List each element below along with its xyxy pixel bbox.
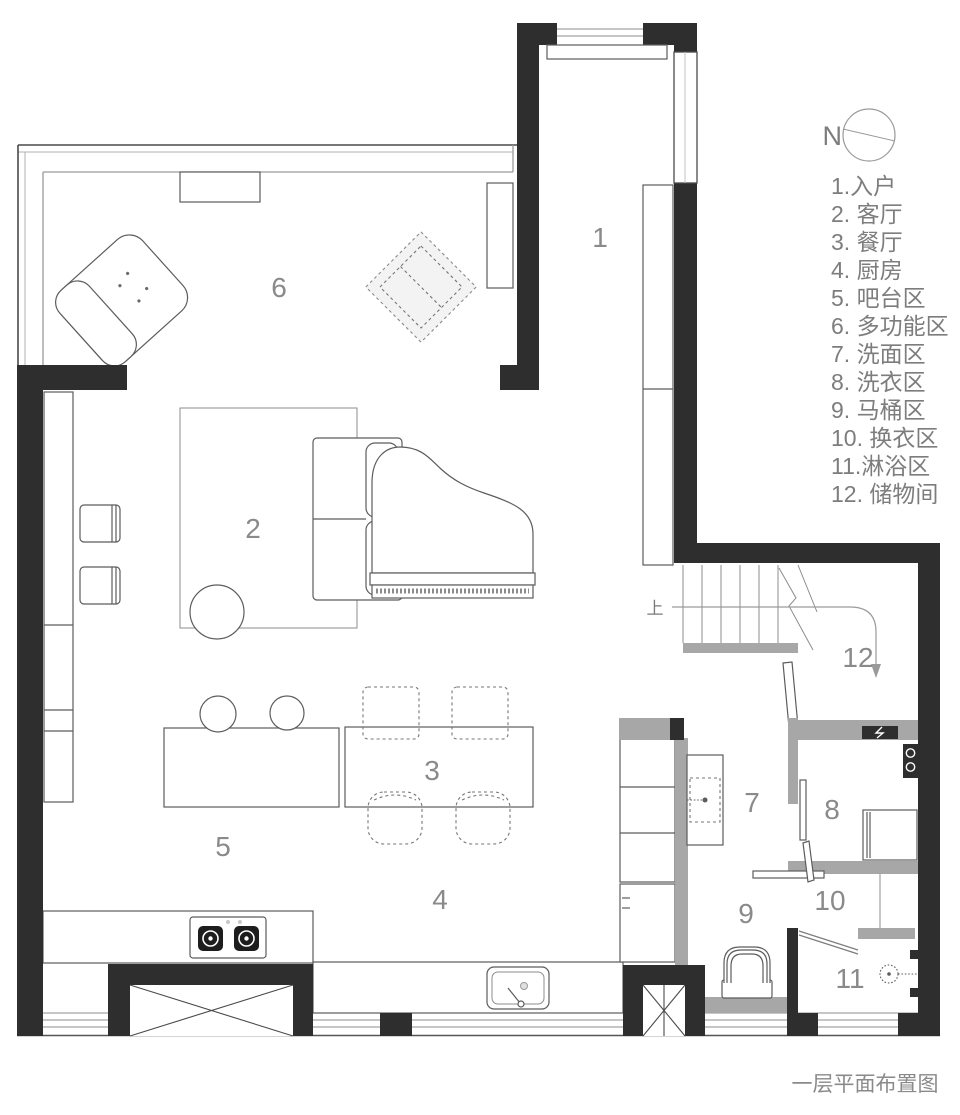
- plan-title: 一层平面布置图: [792, 1073, 939, 1096]
- room-label-shower: 11: [835, 963, 864, 994]
- legend-item: 3. 餐厅: [831, 229, 903, 255]
- shaft-box: [623, 965, 705, 1036]
- room-label-laundry: 8: [824, 794, 840, 825]
- room-label-living: 2: [245, 513, 261, 544]
- shower-door-leaf: [799, 931, 858, 954]
- gas-stove: [190, 917, 266, 958]
- kitchen-sink: [487, 967, 549, 1009]
- stairs-up-label: 上: [647, 599, 664, 618]
- wall-counter-strip: [44, 392, 73, 802]
- entry-closet: [643, 185, 673, 565]
- room-label-bar: 5: [215, 831, 231, 862]
- legend-item: 8. 洗衣区: [831, 369, 926, 395]
- tall-cabinet: [620, 738, 675, 882]
- floor-plan-page: N 1 2 3 4 5 6 7 8 9 10 11 12 上 1.入户 2. 客…: [0, 0, 960, 1115]
- burner-icon: [234, 926, 259, 951]
- legend-item: 12. 储物间: [831, 481, 938, 507]
- wall-stool: [80, 505, 120, 542]
- legend-item: 1.入户: [831, 173, 896, 199]
- fridge: [620, 884, 675, 962]
- washing-machine: [863, 810, 917, 860]
- floor-cushion: [366, 232, 476, 342]
- burner-icon: [198, 926, 223, 951]
- legend-item: 11.淋浴区: [831, 453, 930, 479]
- legend-item: 2. 客厅: [831, 201, 903, 227]
- stacked-dryer-icon: [903, 744, 918, 778]
- shower-valve-icon: [910, 988, 919, 997]
- toilet: [722, 947, 772, 998]
- room-label-entry: 1: [592, 222, 608, 253]
- entry-side-window: [674, 52, 697, 183]
- legend-item: 10. 换衣区: [831, 425, 938, 451]
- lounge-chair: [49, 228, 195, 373]
- north-compass: N: [823, 109, 896, 161]
- grand-piano: [370, 447, 535, 598]
- room-label-storage: 12: [842, 642, 873, 673]
- room-label-washbasin: 7: [744, 787, 760, 818]
- legend-item: 4. 厨房: [831, 257, 903, 283]
- entry-console: [487, 183, 513, 288]
- electrical-box-icon: [862, 726, 898, 739]
- room-label-multifunction: 6: [271, 272, 287, 303]
- room-label-changing: 10: [814, 885, 845, 916]
- terrace-cabinet: [180, 172, 260, 202]
- north-label: N: [823, 121, 843, 151]
- bar-counter: [164, 696, 339, 807]
- legend: 1.入户 2. 客厅 3. 餐厅 4. 厨房 5. 吧台区 6. 多功能区 7.…: [831, 173, 949, 507]
- wall-stool: [80, 567, 120, 604]
- vanity: [687, 755, 723, 845]
- legend-item: 9. 马桶区: [831, 397, 926, 423]
- side-table: [190, 585, 244, 639]
- room-label-toilet: 9: [738, 898, 754, 929]
- legend-item: 5. 吧台区: [831, 285, 926, 311]
- legend-item: 6. 多功能区: [831, 313, 949, 339]
- room-label-kitchen: 4: [432, 884, 448, 915]
- laundry-panel: [800, 780, 806, 840]
- floor-plan-drawing: N 1 2 3 4 5 6 7 8 9 10 11 12 上 1.入户 2. 客…: [0, 0, 960, 1115]
- shaft-box: [108, 964, 313, 1036]
- room-label-dining: 3: [424, 755, 440, 786]
- shower-valve-icon: [910, 950, 919, 959]
- legend-item: 7. 洗面区: [831, 341, 926, 367]
- shower-head-icon: [880, 965, 918, 983]
